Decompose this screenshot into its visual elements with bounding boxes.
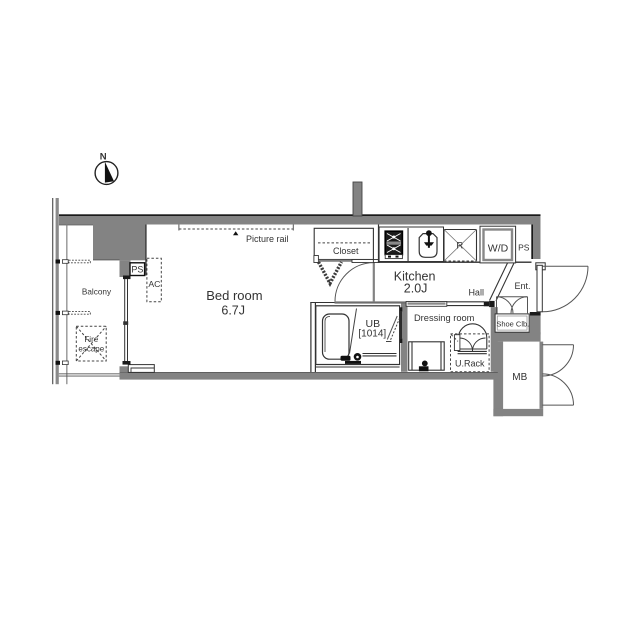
svg-text:N: N bbox=[100, 152, 107, 163]
svg-text:Fire: Fire bbox=[84, 335, 98, 344]
svg-text:Bed room: Bed room bbox=[206, 288, 262, 303]
svg-text:escape: escape bbox=[78, 344, 104, 353]
svg-text:Dressing room: Dressing room bbox=[414, 313, 475, 323]
svg-text:Ent.: Ent. bbox=[514, 281, 530, 291]
svg-text:6.7J: 6.7J bbox=[221, 304, 245, 318]
svg-text:Closet: Closet bbox=[333, 246, 359, 256]
svg-text:W/D: W/D bbox=[488, 242, 509, 254]
svg-text:PS: PS bbox=[131, 265, 143, 275]
svg-text:MB: MB bbox=[512, 372, 527, 383]
svg-text:Hall: Hall bbox=[468, 288, 484, 298]
svg-text:AC: AC bbox=[148, 279, 160, 289]
svg-text:Picture rail: Picture rail bbox=[246, 234, 289, 244]
svg-text:Balcony: Balcony bbox=[82, 288, 112, 297]
svg-text:2.0J: 2.0J bbox=[404, 282, 428, 296]
svg-text:PS: PS bbox=[518, 242, 530, 252]
svg-text:[1014]: [1014] bbox=[358, 328, 386, 339]
svg-text:R: R bbox=[456, 240, 463, 251]
svg-text:Shoe Clb.: Shoe Clb. bbox=[496, 319, 529, 328]
svg-text:U.Rack: U.Rack bbox=[455, 359, 485, 369]
